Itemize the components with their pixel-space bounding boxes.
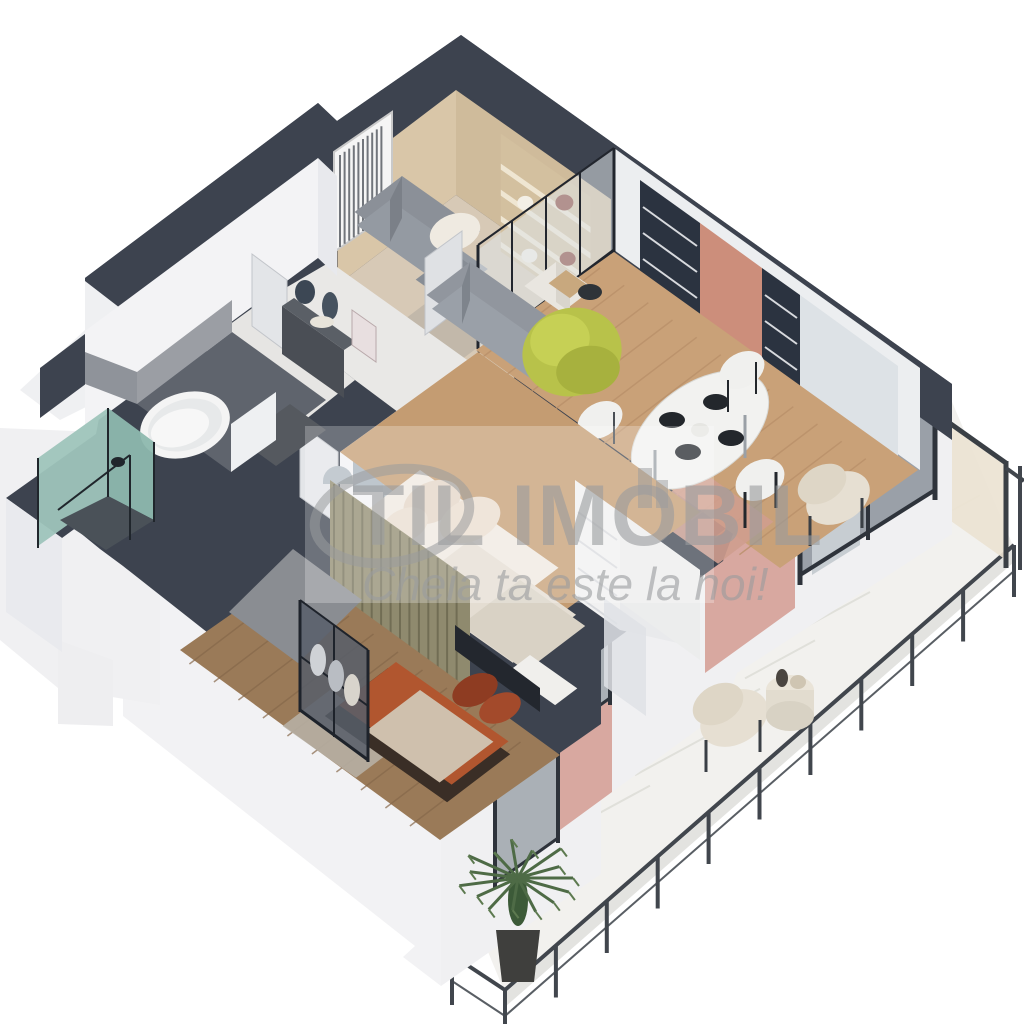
svg-text:TIL IMOBIL: TIL IMOBIL xyxy=(352,468,824,564)
svg-text:Cheia ta este la noi!: Cheia ta este la noi! xyxy=(362,558,769,610)
